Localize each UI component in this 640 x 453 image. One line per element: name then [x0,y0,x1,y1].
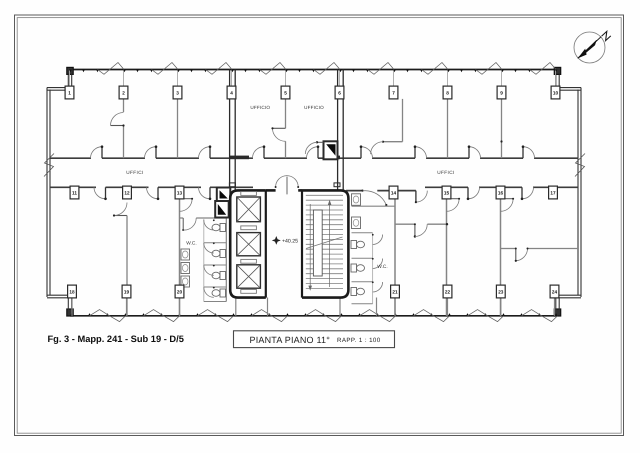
svg-text:3: 3 [176,90,179,95]
svg-text:14: 14 [391,190,397,195]
svg-text:4: 4 [230,90,233,95]
svg-text:7: 7 [392,90,395,95]
svg-text:21: 21 [392,289,398,294]
svg-text:6: 6 [338,90,341,95]
svg-text:5: 5 [284,90,287,95]
svg-text:1: 1 [68,90,71,95]
svg-text:Fg. 3 - Mapp. 241 - Sub 19 - D: Fg. 3 - Mapp. 241 - Sub 19 - D/5 [48,334,184,344]
svg-text:+40.25: +40.25 [282,238,298,244]
svg-text:UFFICIO: UFFICIO [250,105,270,110]
svg-text:23: 23 [498,289,504,294]
svg-text:9: 9 [500,90,503,95]
svg-text:24: 24 [552,289,558,294]
svg-text:18: 18 [69,289,75,294]
svg-text:UFFICI: UFFICI [437,170,455,175]
svg-text:11: 11 [72,190,77,195]
svg-text:15: 15 [444,190,450,195]
svg-text:2: 2 [122,90,125,95]
svg-text:13: 13 [177,190,183,195]
svg-text:22: 22 [445,289,451,294]
svg-text:8: 8 [446,90,449,95]
svg-text:UFFICIO: UFFICIO [304,105,324,110]
svg-text:17: 17 [550,190,556,195]
svg-text:W.C.: W.C. [377,264,387,270]
svg-text:RAPP. 1 : 100: RAPP. 1 : 100 [337,337,381,344]
svg-text:UFFICI: UFFICI [126,170,144,175]
svg-text:W.C.: W.C. [186,241,196,247]
svg-text:20: 20 [177,289,183,294]
svg-text:19: 19 [124,289,130,294]
svg-text:12: 12 [124,190,130,195]
svg-text:10: 10 [553,90,559,95]
svg-text:PIANTA PIANO 11°: PIANTA PIANO 11° [250,335,331,345]
svg-text:16: 16 [498,190,504,195]
